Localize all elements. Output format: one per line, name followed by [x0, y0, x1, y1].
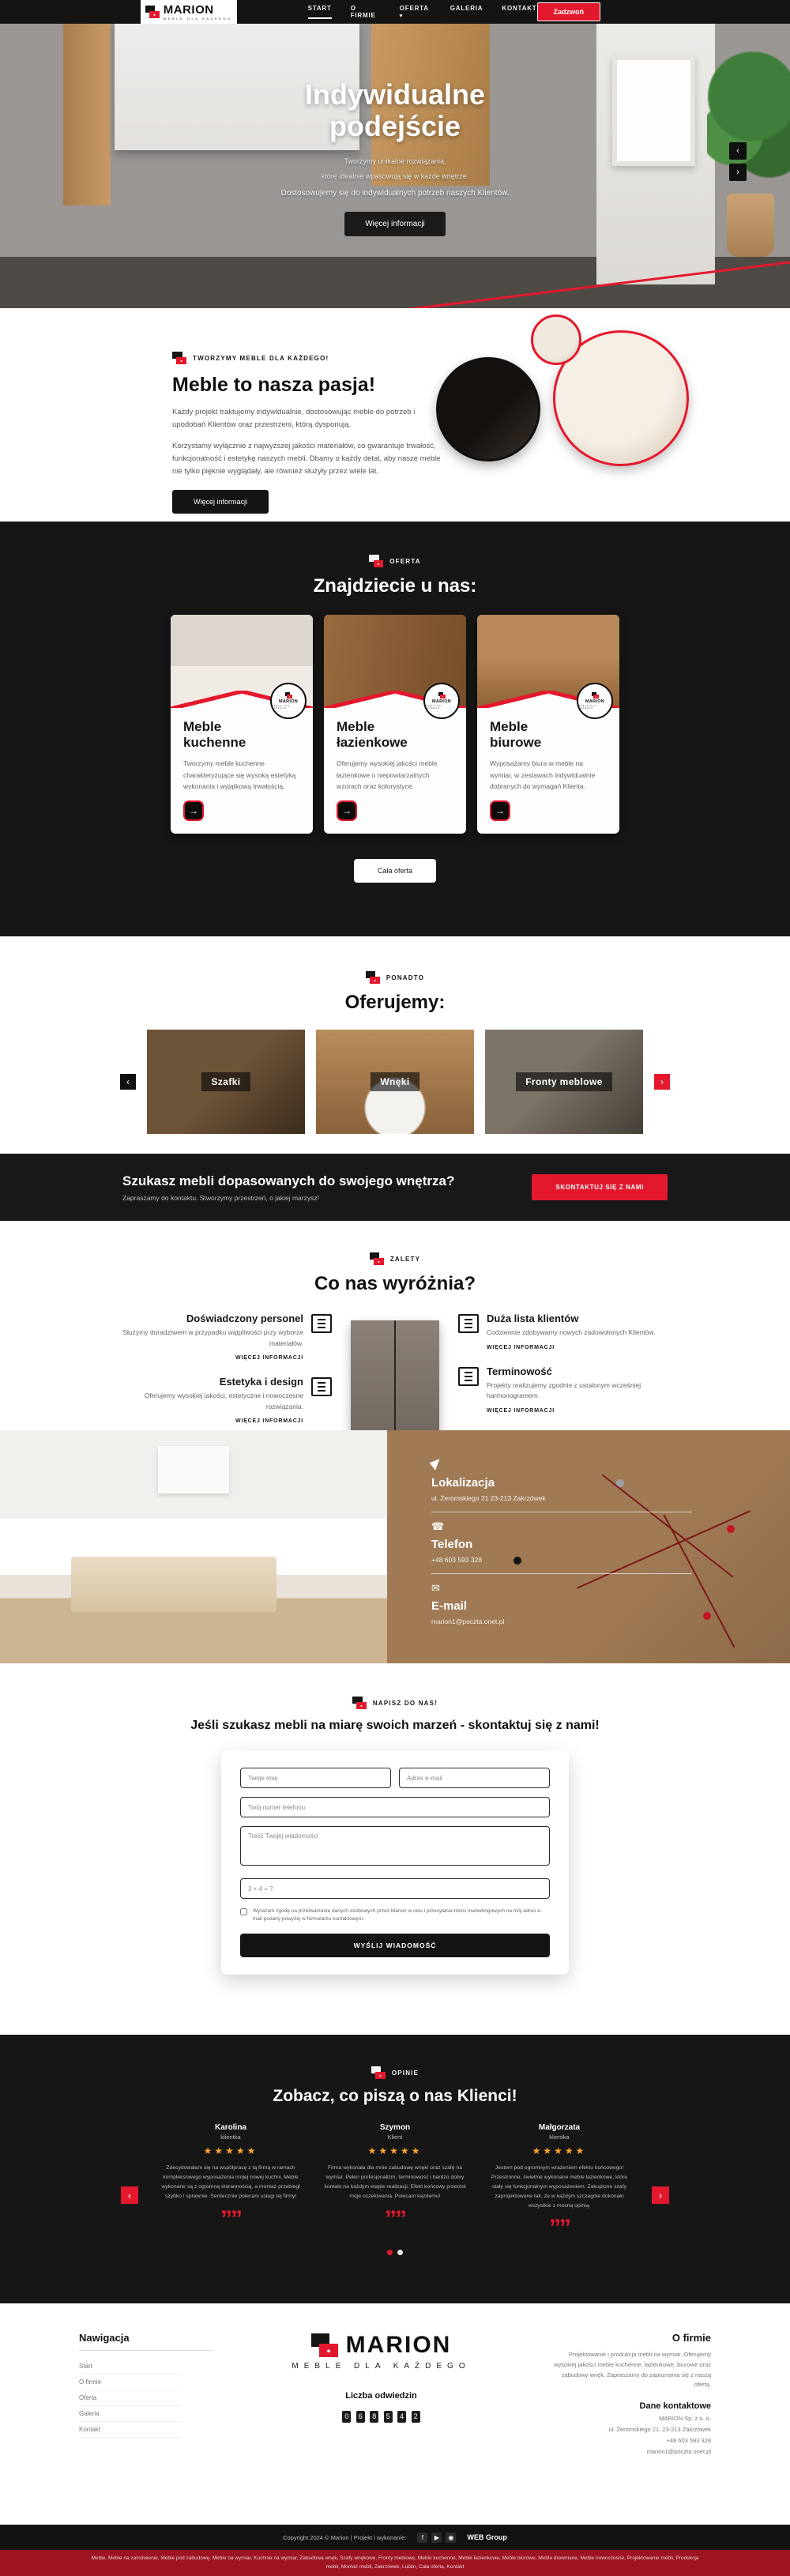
divider: [79, 2350, 213, 2351]
badge-name: MARION: [279, 699, 298, 704]
header: MARION MEBLE DLA KAŻDEGO START O FIRMIE …: [0, 0, 790, 24]
full-offer-button[interactable]: Cała oferta: [354, 859, 436, 883]
about-paragraph-1: Każdy projekt traktujemy indywidualnie, …: [172, 406, 441, 431]
counter-digit: 0: [342, 2411, 351, 2423]
feature-text: Projekty realizujemy zgodnie z ustalonym…: [487, 1380, 668, 1402]
nav-item-galeria[interactable]: GALERIA: [450, 5, 483, 19]
social-icons: f ▶ ◉: [417, 2533, 456, 2543]
email-icon: ✉: [431, 1582, 440, 1594]
hero-title: Indywidualne podejście: [0, 79, 790, 141]
contact-item-value[interactable]: +48 603 593 328: [431, 1556, 692, 1564]
marion-logo-icon: [311, 2333, 338, 2357]
marion-logo-icon: [369, 555, 383, 567]
feature-text: Codziennie zdobywamy nowych zadowolonych…: [487, 1328, 656, 1339]
carousel-slide-fronty[interactable]: Fronty meblowe: [485, 1030, 643, 1134]
quote-icon: ””: [159, 2213, 303, 2227]
hero-more-info-button[interactable]: Więcej informacji: [344, 212, 446, 236]
marion-logo-icon: [352, 1697, 367, 1709]
card-arrow-button[interactable]: →: [490, 800, 510, 821]
footer-about-text: Projektowanie i produkcja mebli na wymia…: [549, 2350, 711, 2390]
contact-item-location: Lokalizacja ul. Żeromskiego 21 23-213 Za…: [431, 1451, 692, 1512]
offer-cards: MARION MEBLE DLA KAŻDEGO Meble kuchenne …: [0, 615, 790, 834]
star-rating: ★★★★★: [487, 2145, 631, 2156]
kitchen-photo: [0, 1430, 387, 1663]
copyright-bar: Copyright 2024 © Marion | Projekt i wyko…: [0, 2525, 790, 2550]
feature-terminowosc: Terminowość Projekty realizujemy zgodnie…: [458, 1365, 668, 1416]
contact-item-title: Telefon: [431, 1538, 692, 1551]
features-title: Co nas wyróżnia?: [0, 1273, 790, 1295]
footer-email[interactable]: marion1@poczta.onet.pl: [549, 2448, 711, 2455]
hero-slider-arrows: ‹ ›: [729, 142, 747, 181]
reviewer-role: Klient: [323, 2133, 467, 2141]
kitchen-photo-table: [71, 1557, 276, 1612]
send-message-button[interactable]: WYŚLIJ WIADOMOŚĆ: [240, 1934, 550, 1957]
consent-text: Wyrażam zgodę na przetwarzanie danych os…: [253, 1908, 550, 1924]
cta-subtitle: Zapraszamy do kontaktu. Stworzymy przest…: [122, 1194, 454, 1202]
feature-text: Oferujemy wysokiej jakości, estetyczne i…: [122, 1391, 303, 1412]
reviews-eyebrow: OPINIE: [392, 2069, 419, 2077]
nav-item-kontakt[interactable]: KONTAKT: [502, 5, 536, 19]
marion-logo-icon: [285, 692, 292, 699]
card-text: Tworzymy meble kuchenne charakteryzujące…: [183, 758, 300, 793]
features-section: ZALETY Co nas wyróżnia? Doświadczony per…: [0, 1221, 790, 1430]
footer-link-oferta[interactable]: Oferta: [79, 2390, 182, 2406]
facebook-icon[interactable]: f: [417, 2533, 427, 2543]
testimonial: Karolina klientka ★★★★★ Zdecydowałam się…: [159, 2123, 303, 2227]
carousel-next-button[interactable]: ›: [654, 1074, 670, 1090]
hero-subtitle-line1: Tworzymy unikalne rozwiązania,: [0, 154, 790, 169]
logo-tagline: MEBLE DLA KAŻDEGO: [164, 17, 232, 21]
features-eyebrow: ZALETY: [390, 1256, 420, 1263]
footer-link-galeria[interactable]: Galeria: [79, 2406, 182, 2422]
hero-subtitle-line2: które idealnie wpasowują się w każde wnę…: [0, 169, 790, 184]
contact-item-phone: ☎ Telefon +48 603 593 328: [431, 1512, 692, 1574]
more-section: PONADTO Oferujemy: ‹ Szafki Wnęki Fronty…: [0, 936, 790, 1154]
marion-badge-icon: MARION MEBLE DLA KAŻDEGO: [577, 683, 613, 719]
footer-company-name: MARION Sp. z o. o.: [549, 2415, 711, 2422]
footer-link-start[interactable]: Start: [79, 2359, 182, 2375]
feature-more-link[interactable]: WIĘCEJ INFORMACJI: [235, 1418, 303, 1424]
offer-section: OFERTA Znajdziecie u nas: MARION MEBLE D…: [0, 522, 790, 936]
contact-item-email: ✉ E-mail marion1@poczta.onet.pl: [431, 1574, 692, 1635]
main-nav: START O FIRMIE OFERTA ▾ GALERIA KONTAKT: [308, 5, 537, 19]
review-text: Zdecydowałam się na współpracę z tą firm…: [159, 2164, 303, 2201]
chevron-down-icon: ▾: [400, 13, 403, 19]
badge-tagline: MEBLE DLA KAŻDEGO: [425, 705, 458, 710]
carousel-prev-button[interactable]: ‹: [120, 1074, 136, 1090]
contact-item-title: Lokalizacja: [431, 1476, 692, 1489]
cabinet-icon: [458, 1314, 479, 1333]
slide-label: Szafki: [201, 1072, 250, 1091]
reviewer-name: Szymon: [323, 2123, 467, 2132]
marion-logo-icon: [371, 2066, 386, 2079]
feature-more-link[interactable]: WIĘCEJ INFORMACJI: [235, 1355, 303, 1361]
feature-klienci: Duża lista klientów Codziennie zdobywamy…: [458, 1312, 668, 1353]
offer-card-office[interactable]: MARION MEBLE DLA KAŻDEGO Meble biurowe W…: [477, 615, 619, 834]
reviewer-name: Małgorzata: [487, 2123, 631, 2132]
seo-keywords-text: Meble, Meble na zamówienie, Meble pod za…: [87, 2555, 703, 2571]
footer-link-kontakt[interactable]: Kontakt: [79, 2422, 182, 2438]
youtube-icon[interactable]: ▶: [431, 2533, 442, 2543]
call-button[interactable]: Zadzwoń: [537, 2, 601, 21]
slider-next-button[interactable]: ›: [729, 164, 747, 181]
about-section: TWORZYMY MEBLE DLA KAŻDEGO! Meble to nas…: [0, 308, 790, 522]
copyright-text: Copyright 2024 © Marion | Projekt i wyko…: [283, 2534, 406, 2541]
about-paragraph-2: Korzystamy wyłącznie z najwyższej jakośc…: [172, 440, 441, 477]
cta-band: Szukasz mebli dopasowanych do swojego wn…: [0, 1154, 790, 1221]
reviewer-role: klientka: [487, 2133, 631, 2141]
slide-label: Fronty meblowe: [516, 1072, 612, 1091]
cabinet-icon: [311, 1314, 332, 1333]
cta-contact-button[interactable]: SKONTAKTUJ SIĘ Z NAMI: [532, 1174, 668, 1200]
card-arrow-button[interactable]: →: [183, 800, 204, 821]
about-title: Meble to nasza pasja!: [172, 374, 441, 397]
reviews-title: Zobacz, co piszą o nas Klienci!: [0, 2087, 790, 2106]
marion-badge-icon: MARION MEBLE DLA KAŻDEGO: [423, 683, 460, 719]
badge-name: MARION: [585, 699, 604, 704]
offer-title: Znajdziecie u nas:: [0, 575, 790, 597]
more-eyebrow: PONADTO: [386, 974, 424, 981]
hero-section: Indywidualne podejście Tworzymy unikalne…: [0, 24, 790, 308]
hero-subtitle: Tworzymy unikalne rozwiązania, które ide…: [0, 154, 790, 184]
footer-address: ul. Żeromskiego 21, 23-213 Zakrzówek: [549, 2426, 711, 2433]
kitchen-photo-cabinet: [158, 1446, 229, 1493]
badge-tagline: MEBLE DLA KAŻDEGO: [578, 705, 611, 710]
hero-red-accent-line: [397, 259, 790, 308]
marion-logo-icon: [366, 971, 380, 984]
nav-item-o-firmie[interactable]: O FIRMIE: [351, 5, 381, 19]
footer: Nawigacja Start O firmie Oferta Galeria …: [0, 2303, 790, 2525]
feature-personel: Doświadczony personel Służymy doradztwem…: [122, 1312, 332, 1363]
seo-keywords-band: Meble, Meble na zamówienie, Meble pod za…: [0, 2550, 790, 2576]
about-photo-circle-dark: [436, 357, 540, 461]
form-section: NAPISZ DO NAS! Jeśli szukasz mebli na mi…: [0, 1663, 790, 2035]
badge-tagline: MEBLE DLA KAŻDEGO: [272, 705, 305, 710]
footer-link-o-firmie[interactable]: O firmie: [79, 2375, 182, 2390]
feature-estetyka: Estetyka i design Oferujemy wysokiej jak…: [122, 1376, 332, 1426]
visit-counter: 0 6 8 5 4 2: [213, 2408, 549, 2423]
consent-checkbox[interactable]: [240, 1908, 247, 1915]
counter-digit: 6: [356, 2411, 365, 2423]
pin-icon: [703, 1612, 711, 1620]
counter-digit: 4: [397, 2411, 406, 2423]
carousel: ‹ Szafki Wnęki Fronty meblowe ›: [0, 1030, 790, 1134]
feature-title: Duża lista klientów: [487, 1312, 656, 1324]
reviews-section: OPINIE Zobacz, co piszą o nas Klienci! ‹…: [0, 2035, 790, 2303]
cabinet-icon: [311, 1377, 332, 1396]
marion-logo-icon: [592, 692, 599, 699]
review-text: Firma wykonała dla mnie zabudowę wnęki o…: [323, 2164, 467, 2201]
phone-icon: ☎: [431, 1520, 444, 1532]
review-text: Jestem pod ogromnym wrażeniem efektu koń…: [487, 2164, 631, 2210]
card-text: Oferujemy wysokiej jakości meble łazienk…: [337, 758, 453, 793]
marion-badge-icon: MARION MEBLE DLA KAŻDEGO: [270, 683, 307, 719]
carousel-dot[interactable]: [397, 2250, 403, 2255]
counter-digit: 5: [384, 2411, 393, 2423]
instagram-icon[interactable]: ◉: [446, 2533, 456, 2543]
card-text: Wyposażamy biura w meble na wymiar, w ze…: [490, 758, 607, 793]
hero-title-line1: Indywidualne: [0, 79, 790, 111]
feature-title: Terminowość: [487, 1365, 668, 1377]
location-arrow-icon: [430, 1456, 444, 1470]
reviewer-name: Karolina: [159, 2123, 303, 2132]
carousel-slide-szafki[interactable]: Szafki: [147, 1030, 305, 1134]
testimonial: Małgorzata klientka ★★★★★ Jestem pod ogr…: [487, 2123, 631, 2235]
feature-title: Estetyka i design: [122, 1376, 303, 1388]
footer-contact-title: Dane kontaktowe: [549, 2401, 711, 2411]
card-title: Meble kuchenne: [183, 719, 270, 750]
offer-card-kitchen[interactable]: MARION MEBLE DLA KAŻDEGO Meble kuchenne …: [171, 615, 313, 834]
about-more-info-button[interactable]: Więcej informacji: [172, 490, 269, 514]
hero-subtitle-line3: Dostosowujemy się do indywidualnych potr…: [0, 189, 790, 198]
feature-title: Doświadczony personel: [122, 1312, 303, 1324]
captcha-field[interactable]: [240, 1878, 550, 1899]
logo[interactable]: MARION MEBLE DLA KAŻDEGO: [141, 0, 237, 24]
contact-form: Wyrażam zgodę na przetwarzanie danych os…: [221, 1750, 569, 1975]
phone-field[interactable]: [240, 1797, 550, 1817]
logo-name: MARION: [164, 4, 232, 16]
message-field[interactable]: [240, 1826, 550, 1866]
reviews-next-button[interactable]: ›: [652, 2186, 669, 2204]
testimonial: Szymon Klient ★★★★★ Firma wykonała dla m…: [323, 2123, 467, 2227]
star-rating: ★★★★★: [159, 2145, 303, 2156]
marion-logo-icon: [145, 6, 160, 18]
footer-logo-name: MARION: [346, 2332, 452, 2359]
quote-icon: ””: [323, 2213, 467, 2227]
feature-more-link[interactable]: WIĘCEJ INFORMACJI: [487, 1345, 555, 1350]
cabinet-icon: [458, 1367, 479, 1386]
badge-name: MARION: [432, 699, 451, 704]
offer-card-bathroom[interactable]: MARION MEBLE DLA KAŻDEGO Meble łazienkow…: [324, 615, 466, 834]
carousel-slide-wneki[interactable]: Wnęki: [316, 1030, 474, 1134]
form-eyebrow: NAPISZ DO NAS!: [373, 1700, 438, 1707]
pin-icon: [727, 1525, 735, 1533]
card-title: Meble łazienkowe: [337, 719, 423, 750]
marion-logo-icon: [438, 692, 446, 699]
card-title: Meble biurowe: [490, 719, 577, 750]
marion-logo-icon: [172, 352, 186, 364]
footer-nav-title: Nawigacja: [79, 2332, 213, 2344]
feature-more-link[interactable]: WIĘCEJ INFORMACJI: [487, 1408, 555, 1414]
nav-item-oferta-label: OFERTA: [400, 5, 429, 12]
hero-title-line2: podejście: [0, 111, 790, 142]
reviews-prev-button[interactable]: ‹: [121, 2186, 138, 2204]
contact-item-title: E-mail: [431, 1599, 692, 1613]
about-photo-circle-small: [531, 314, 581, 365]
contact-item-value: ul. Żeromskiego 21 23-213 Zakrzówek: [431, 1494, 692, 1502]
more-title: Oferujemy:: [0, 992, 790, 1014]
hero-content: Indywidualne podejście Tworzymy unikalne…: [0, 79, 790, 236]
card-arrow-button[interactable]: →: [337, 800, 357, 821]
email-field[interactable]: [399, 1768, 550, 1788]
contact-section: Lokalizacja ul. Żeromskiego 21 23-213 Za…: [0, 1430, 790, 1663]
counter-digit: 8: [370, 2411, 378, 2423]
nav-item-start[interactable]: START: [308, 5, 332, 19]
contact-item-value[interactable]: marion1@poczta.onet.pl: [431, 1618, 692, 1625]
star-rating: ★★★★★: [323, 2145, 467, 2156]
quote-icon: ””: [487, 2221, 631, 2235]
cta-title: Szukasz mebli dopasowanych do swojego wn…: [122, 1173, 454, 1189]
feature-text: Służymy doradztwem w przypadku wątpliwoś…: [122, 1328, 303, 1349]
footer-phone[interactable]: +48 603 593 328: [549, 2437, 711, 2444]
counter-digit: 2: [412, 2411, 420, 2423]
reviewer-role: klientka: [159, 2133, 303, 2141]
slide-label: Wnęki: [371, 1072, 419, 1091]
nav-item-oferta[interactable]: OFERTA ▾: [400, 5, 431, 19]
marion-logo-icon: [370, 1252, 384, 1265]
cork-board-panel: Lokalizacja ul. Żeromskiego 21 23-213 Za…: [387, 1430, 790, 1663]
visits-label: Liczba odwiedzin: [213, 2391, 549, 2401]
slider-prev-button[interactable]: ‹: [729, 142, 747, 160]
footer-about-title: O firmie: [549, 2332, 711, 2344]
about-eyebrow: TWORZYMY MEBLE DLA KAŻDEGO!: [193, 355, 329, 362]
wardrobe-photo: [351, 1320, 439, 1430]
footer-logo-tagline: MEBLE DLA KAŻDEGO: [213, 2362, 549, 2371]
form-title: Jeśli szukasz mebli na miarę swoich marz…: [0, 1719, 790, 1733]
name-field[interactable]: [240, 1768, 391, 1788]
agency-link[interactable]: WEB Group: [467, 2533, 507, 2541]
offer-eyebrow: OFERTA: [389, 558, 421, 565]
carousel-dot-active[interactable]: [387, 2250, 393, 2255]
